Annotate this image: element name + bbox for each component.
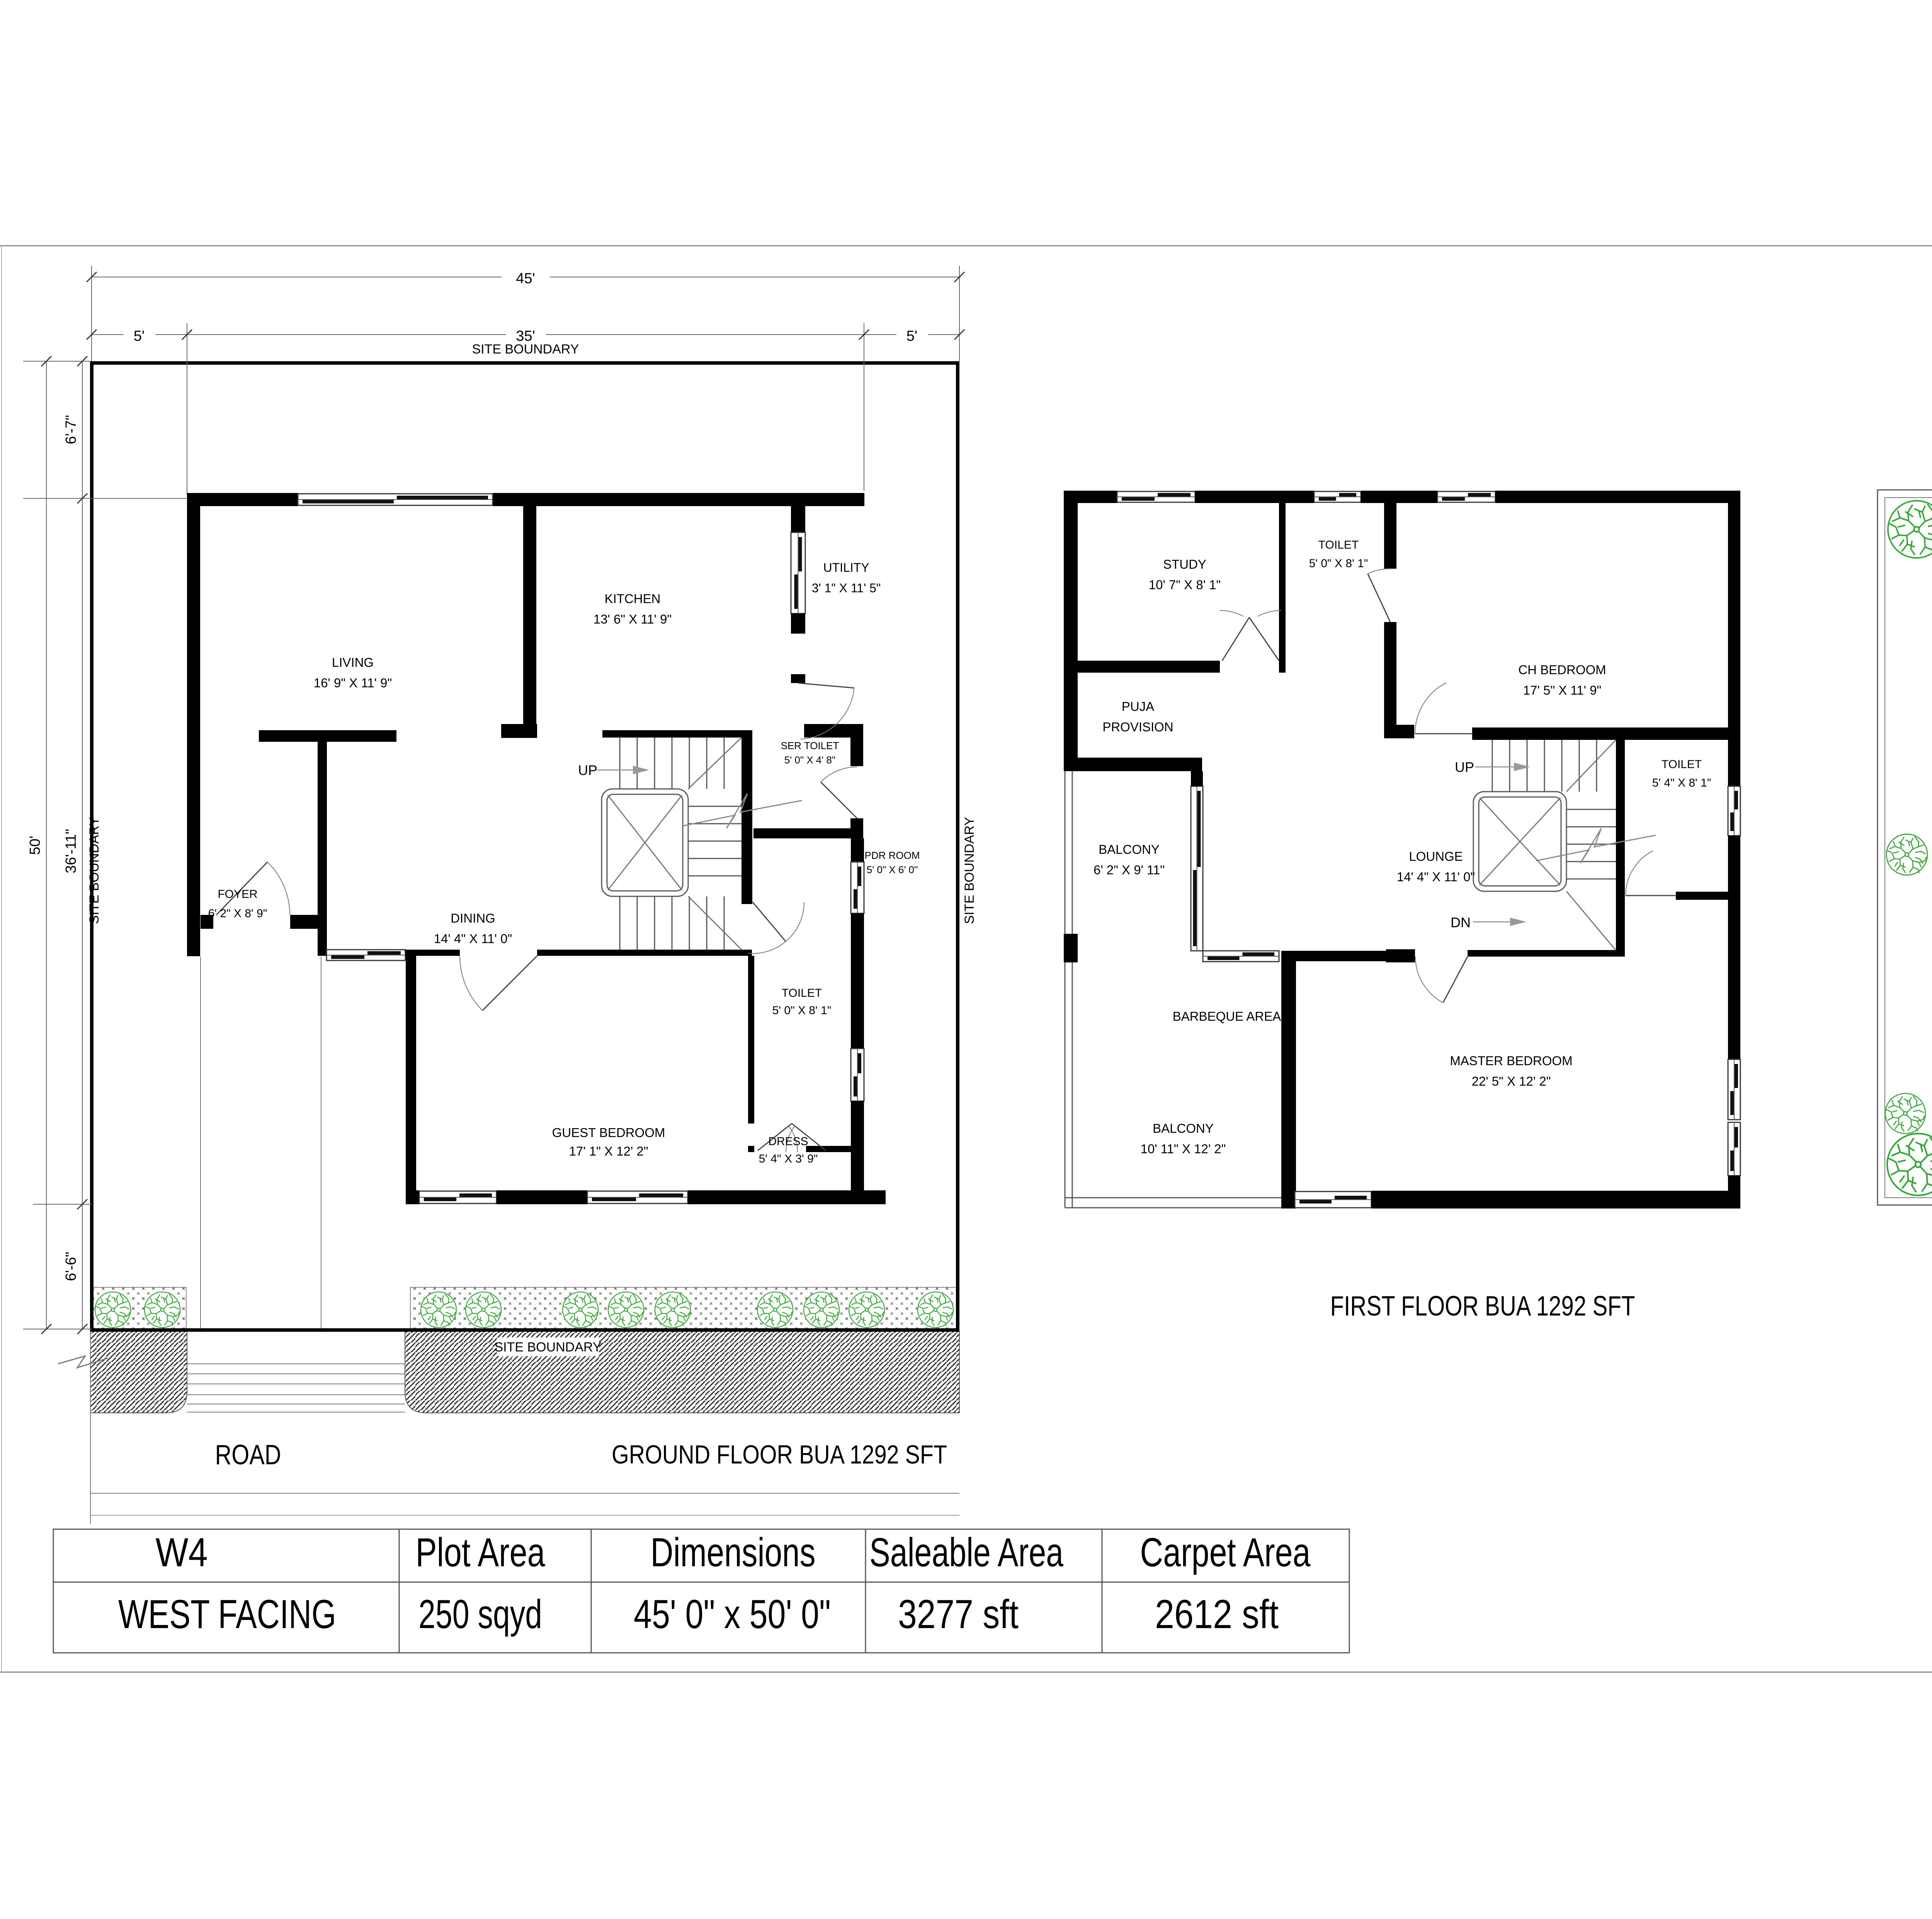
svg-text:TOILET: TOILET [1318,539,1359,551]
svg-text:5' 4" X 8' 1": 5' 4" X 8' 1" [1652,777,1711,789]
svg-text:6'-7": 6'-7" [63,415,79,444]
svg-text:SITE BOUNDARY: SITE BOUNDARY [472,342,579,357]
svg-text:Carpet Area: Carpet Area [1140,1530,1311,1575]
svg-text:3277 sft: 3277 sft [898,1592,1019,1637]
svg-text:SER TOILET: SER TOILET [781,740,839,751]
svg-text:SITE BOUNDARY: SITE BOUNDARY [962,817,977,924]
svg-text:PUJA: PUJA [1122,699,1154,714]
svg-text:DINING: DINING [451,911,495,925]
svg-text:5' 0" X 8' 1": 5' 0" X 8' 1" [1309,557,1368,570]
svg-text:14' 4" X 11' 0": 14' 4" X 11' 0" [1397,870,1475,884]
svg-text:FIRST FLOOR BUA 1292 SFT: FIRST FLOOR BUA 1292 SFT [1330,1291,1635,1322]
svg-text:LIVING: LIVING [332,655,374,670]
svg-text:16' 9" X 11' 9": 16' 9" X 11' 9" [314,676,392,690]
svg-text:PROVISION: PROVISION [1102,720,1173,734]
svg-text:5': 5' [906,328,917,344]
svg-text:36'-11": 36'-11" [63,829,79,873]
svg-text:KITCHEN: KITCHEN [605,592,661,606]
svg-text:45': 45' [516,270,535,287]
svg-text:5' 4" X 3' 9": 5' 4" X 3' 9" [759,1152,818,1165]
svg-text:22' 5" X 12' 2": 22' 5" X 12' 2" [1472,1074,1551,1088]
svg-text:LOUNGE: LOUNGE [1409,849,1463,863]
svg-text:GROUND FLOOR BUA 1292 SFT: GROUND FLOOR BUA 1292 SFT [612,1440,947,1469]
svg-text:5' 0" X 8' 1": 5' 0" X 8' 1" [772,1004,832,1017]
svg-text:DRESS: DRESS [768,1135,808,1148]
svg-text:UTILITY: UTILITY [823,561,869,575]
svg-text:GUEST BEDROOM: GUEST BEDROOM [552,1125,665,1140]
svg-text:SITE BOUNDARY: SITE BOUNDARY [87,817,102,924]
svg-text:TOILET: TOILET [1662,758,1702,771]
svg-text:SITE BOUNDARY: SITE BOUNDARY [494,1340,601,1355]
svg-text:2612 sft: 2612 sft [1155,1592,1279,1637]
svg-text:14' 4" X 11' 0": 14' 4" X 11' 0" [434,931,512,946]
svg-text:10' 7" X 8' 1": 10' 7" X 8' 1" [1149,578,1221,592]
svg-text:W4: W4 [156,1530,208,1575]
svg-text:BALCONY: BALCONY [1153,1121,1214,1135]
svg-text:CH BEDROOM: CH BEDROOM [1518,663,1606,677]
svg-text:Saleable Area: Saleable Area [869,1530,1063,1575]
svg-text:45' 0" x 50' 0": 45' 0" x 50' 0" [634,1592,831,1637]
svg-text:STUDY: STUDY [1163,557,1206,571]
svg-text:17' 5" X 11' 9": 17' 5" X 11' 9" [1523,683,1601,697]
svg-text:Dimensions: Dimensions [651,1530,816,1575]
svg-text:UP: UP [1455,759,1474,775]
svg-text:5' 0" X 6' 0": 5' 0" X 6' 0" [867,864,918,875]
svg-text:DN: DN [1451,914,1471,930]
svg-text:17' 1" X 12' 2": 17' 1" X 12' 2" [569,1144,648,1158]
svg-text:13' 6" X 11' 9": 13' 6" X 11' 9" [594,612,672,626]
svg-text:ROAD: ROAD [215,1440,281,1470]
svg-text:10' 11" X 12' 2": 10' 11" X 12' 2" [1141,1142,1226,1156]
svg-text:FOYER: FOYER [218,888,257,901]
svg-text:TOILET: TOILET [782,987,822,999]
svg-text:5': 5' [134,328,145,344]
svg-text:250 sqyd: 250 sqyd [418,1592,542,1637]
svg-text:WEST FACING: WEST FACING [118,1592,336,1637]
svg-text:BALCONY: BALCONY [1099,842,1160,857]
svg-text:6' 2" X 8' 9": 6' 2" X 8' 9" [208,907,267,920]
svg-text:5' 0" X 4' 8": 5' 0" X 4' 8" [784,754,835,766]
svg-text:50': 50' [27,836,43,855]
svg-text:Plot Area: Plot Area [416,1530,545,1575]
svg-text:MASTER BEDROOM: MASTER BEDROOM [1450,1054,1572,1068]
svg-text:UP: UP [578,762,597,778]
svg-text:3' 1" X 11' 5": 3' 1" X 11' 5" [812,581,881,595]
svg-text:PDR ROOM: PDR ROOM [865,850,920,861]
svg-text:6' 2" X 9' 11": 6' 2" X 9' 11" [1094,863,1165,877]
svg-text:BARBEQUE AREA: BARBEQUE AREA [1173,1009,1281,1023]
svg-text:6'-6": 6'-6" [63,1252,79,1281]
